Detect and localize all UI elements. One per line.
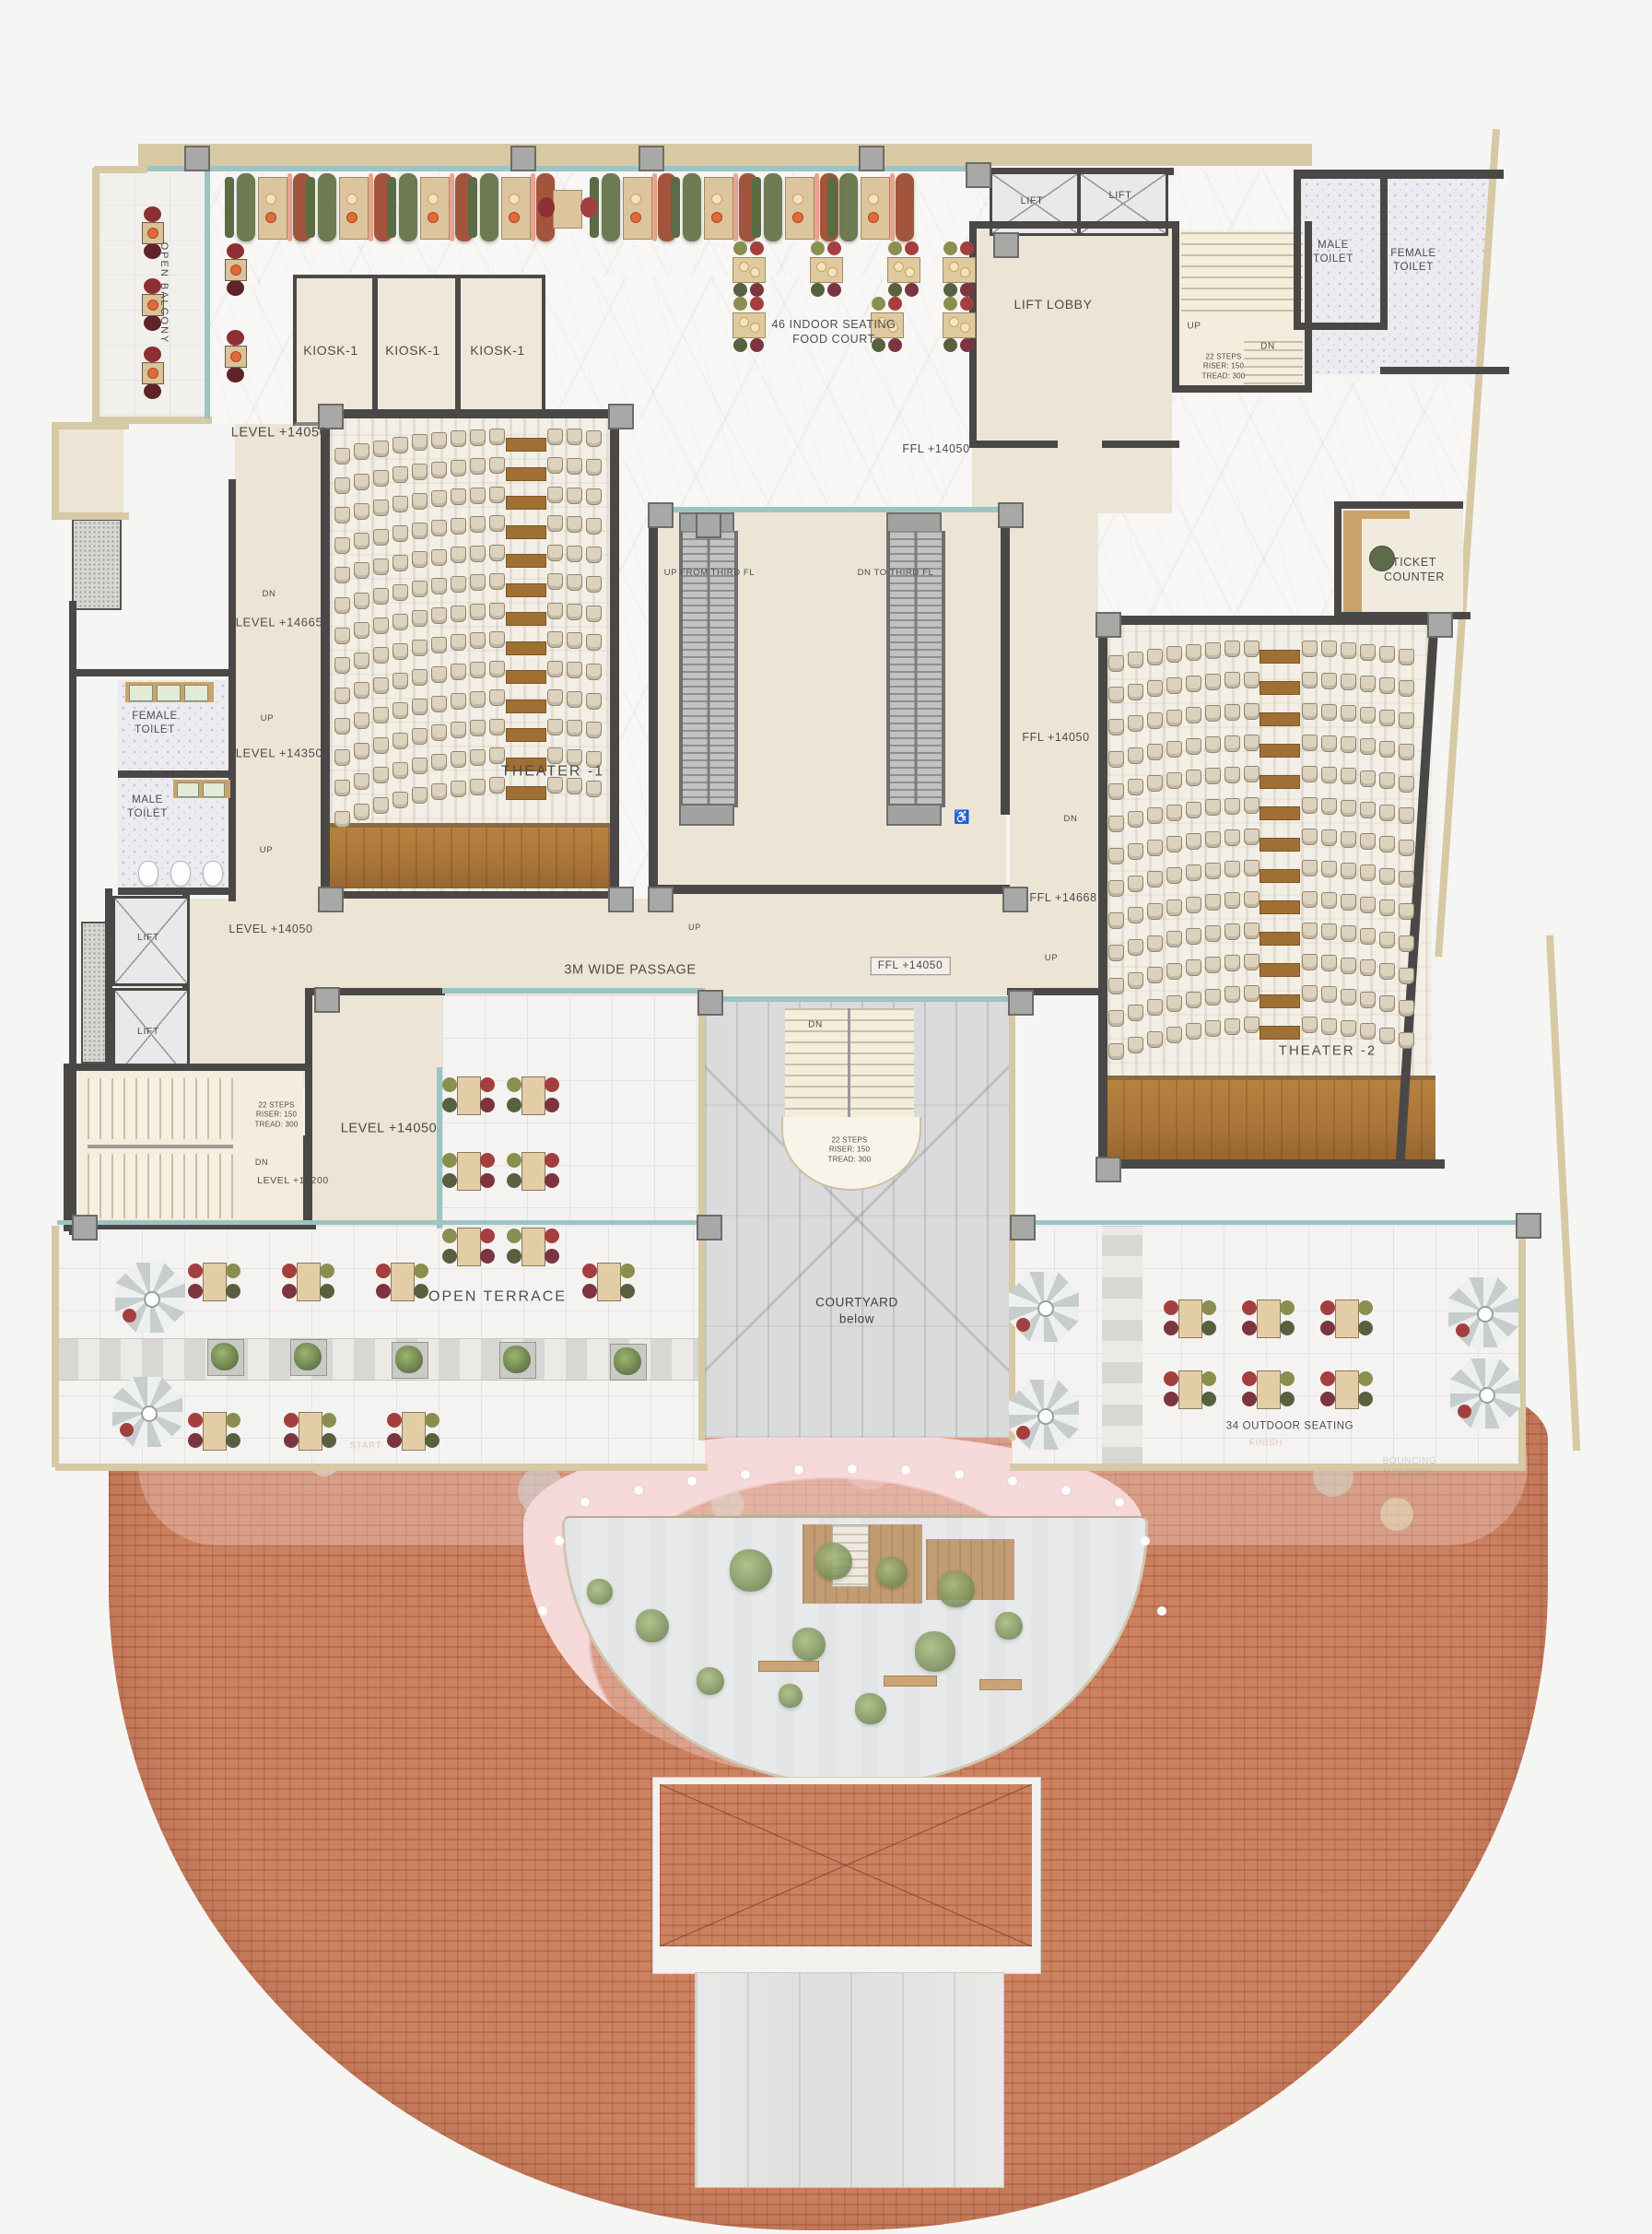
theater-seat: [1147, 712, 1163, 729]
theater-seat: [567, 662, 582, 678]
theater-seat: [451, 664, 466, 680]
plate: [346, 212, 357, 223]
outdoor-table: [597, 1263, 621, 1301]
walkway-dot: [634, 1486, 643, 1495]
theater-seat: [1205, 925, 1221, 942]
theater-seat: [1147, 680, 1163, 697]
chair: [582, 1264, 597, 1278]
theater-seat: [1302, 923, 1318, 939]
aisle-step: [1260, 775, 1300, 789]
courtyard-bench: [758, 1661, 819, 1672]
chair: [376, 1284, 391, 1299]
theater-seat: [1205, 705, 1221, 722]
theater-seat: [1205, 674, 1221, 690]
chair: [811, 283, 825, 297]
chair: [425, 1433, 439, 1448]
theater-seat: [470, 662, 486, 678]
theater-seat: [567, 574, 582, 591]
theater-seat: [1186, 644, 1201, 661]
column: [72, 1215, 98, 1240]
theater-seat: [1321, 735, 1337, 752]
chair: [1458, 1405, 1471, 1418]
theater-seat: [1341, 958, 1356, 974]
dining-table: [943, 257, 976, 283]
theater-seat: [1399, 776, 1414, 793]
theater-seat: [354, 533, 369, 549]
theater-seat: [334, 477, 350, 494]
theater-seat: [1166, 931, 1182, 947]
column: [697, 1215, 722, 1240]
theater-seat: [1128, 907, 1143, 923]
theater-seat: [1186, 1023, 1201, 1040]
plate: [750, 323, 760, 333]
theater-seat: [1379, 710, 1395, 726]
chair: [442, 1249, 457, 1264]
theater-seat: [567, 632, 582, 649]
chair: [188, 1433, 203, 1448]
theater-seat: [1341, 705, 1356, 722]
courtyard-tree: [697, 1667, 724, 1695]
theater-seat: [354, 653, 369, 669]
column: [648, 887, 674, 912]
theater-seat: [1224, 672, 1240, 688]
theater-seat: [1244, 797, 1260, 814]
aisle-step: [506, 554, 546, 568]
theater-seat: [1128, 876, 1143, 892]
theater-seat: [1147, 744, 1163, 760]
chair: [545, 1173, 559, 1188]
plate: [147, 368, 158, 379]
column: [639, 146, 664, 171]
theater-seat: [1186, 928, 1201, 945]
chair: [733, 338, 747, 352]
booth-seat-accent: [531, 173, 535, 241]
booth-seat: [480, 173, 498, 241]
outdoor-table: [457, 1228, 481, 1266]
theater-seat: [451, 634, 466, 651]
theater-seat: [1244, 1017, 1260, 1033]
column: [608, 887, 634, 912]
column: [993, 232, 1019, 258]
chair: [1280, 1321, 1295, 1335]
aisle-step: [1260, 650, 1300, 664]
stair-treads: [88, 1154, 233, 1218]
theater-seat: [470, 488, 486, 504]
toilet-tr-floor: [1301, 179, 1500, 374]
walkway-dot: [687, 1476, 697, 1486]
chair: [1242, 1371, 1257, 1386]
theater-seat: [1244, 860, 1260, 876]
theater-seat: [1205, 989, 1221, 1005]
theater-seat: [567, 429, 582, 445]
theater-seat: [1341, 800, 1356, 817]
column: [859, 146, 885, 171]
booth-plant: [752, 177, 761, 238]
passage-label: 3M WIDE PASSAGE: [564, 962, 696, 980]
glass-line: [705, 996, 1011, 1002]
chair: [120, 1423, 134, 1437]
open-terrace-label: OPEN TERRACE: [428, 1288, 567, 1308]
theater-seat: [1108, 1010, 1124, 1027]
booth-seat: [683, 173, 701, 241]
chair: [507, 1173, 521, 1188]
theater-seat: [392, 792, 408, 808]
theater-seat: [1186, 676, 1201, 692]
booth-table: [258, 177, 287, 240]
chair: [733, 241, 747, 255]
theater-seat: [392, 762, 408, 779]
theater-seat: [1379, 741, 1395, 758]
ticket-counter-label: TICKET COUNTER: [1384, 555, 1445, 585]
chair: [733, 297, 747, 311]
theater-seat: [1399, 935, 1414, 952]
theater-seat: [1379, 772, 1395, 789]
sink: [157, 685, 181, 701]
plate: [265, 194, 276, 205]
theater-seat: [1128, 747, 1143, 764]
theater-seat: [567, 488, 582, 504]
theater-seat: [1302, 672, 1318, 688]
plate: [905, 267, 915, 277]
chair: [1016, 1318, 1030, 1332]
plate: [509, 194, 520, 205]
theater-seat: [431, 520, 447, 536]
theater-seat: [567, 604, 582, 620]
theater-seat: [1205, 831, 1221, 848]
terrace-paving-band: [57, 1338, 705, 1381]
theater-seat: [1108, 945, 1124, 961]
chair: [1358, 1300, 1373, 1315]
theater-seat: [1321, 923, 1337, 940]
outdoor-table: [1257, 1299, 1281, 1338]
theater-seat: [412, 758, 428, 774]
theater-seat: [547, 719, 563, 735]
aisle-step: [506, 583, 546, 597]
planter-shrub: [294, 1343, 322, 1370]
theater-seat: [489, 487, 505, 503]
theater-seat: [1224, 798, 1240, 815]
theater-seat: [1341, 674, 1356, 690]
theater-seat: [392, 643, 408, 660]
theater-seat: [470, 516, 486, 533]
plate: [827, 267, 838, 277]
theater-seat: [451, 460, 466, 476]
theater-seat: [1186, 959, 1201, 976]
booth-seat: [237, 173, 255, 241]
theater-seat: [1321, 798, 1337, 815]
stair-note: 22 STEPS RISER: 150 TREAD: 300: [828, 1135, 872, 1164]
glass-line: [147, 166, 971, 171]
column: [1095, 1157, 1121, 1182]
booth-plant: [387, 177, 396, 238]
courtyard-tree: [815, 1543, 852, 1580]
outdoor-table: [1335, 1370, 1359, 1409]
theater-seat: [334, 749, 350, 766]
theater-seat: [1128, 972, 1143, 989]
theater-seat: [1128, 652, 1143, 668]
chair: [960, 338, 974, 352]
kiosk-label: KIOSK-1: [385, 342, 439, 359]
chair: [827, 283, 841, 297]
umbrella-center: [1037, 1408, 1054, 1425]
walkway-dot: [1115, 1498, 1124, 1507]
planter-shrub: [211, 1343, 239, 1370]
theater-seat: [1108, 655, 1124, 672]
theater-seat: [547, 631, 563, 648]
walkway-dot: [538, 1606, 547, 1616]
theater-seat: [1379, 646, 1395, 663]
walkway-dot: [741, 1470, 750, 1479]
chair: [620, 1264, 635, 1278]
theater-seat: [1128, 779, 1143, 795]
chair: [226, 1433, 240, 1448]
theater-seat: [547, 661, 563, 677]
chair: [442, 1173, 457, 1188]
chair: [442, 1098, 457, 1112]
theater-seat: [373, 441, 389, 457]
chair: [545, 1077, 559, 1092]
chair: [545, 1098, 559, 1112]
plate: [949, 262, 959, 272]
theater-seat: [1224, 986, 1240, 1003]
play-start-label: START: [350, 1440, 382, 1452]
chair: [545, 1249, 559, 1264]
chair: [1242, 1392, 1257, 1406]
toilet-fixture: [138, 861, 158, 887]
booth-table: [861, 177, 890, 240]
chair: [227, 243, 244, 259]
theater-seat: [470, 429, 486, 446]
theater-seat: [1341, 925, 1356, 942]
theater-seat: [567, 691, 582, 708]
level-label: LEVEL +14050: [341, 1121, 438, 1138]
theater-seat: [489, 429, 505, 445]
chair: [480, 1077, 495, 1092]
theater-seat: [1108, 751, 1124, 768]
chair: [442, 1153, 457, 1168]
theater-seat: [1302, 735, 1318, 751]
chair: [144, 383, 161, 399]
vestibule-floor: [309, 995, 442, 1228]
chair: [1280, 1371, 1295, 1386]
theater-seat: [489, 689, 505, 706]
theater-seat: [1321, 986, 1337, 1003]
female-toilet-label: FEMALE TOILET: [1390, 247, 1436, 275]
theater-seat: [1244, 985, 1260, 1002]
passage-floor: [309, 899, 1106, 995]
theater-seat: [1360, 707, 1376, 723]
theater-seat: [1186, 707, 1201, 723]
theater-seat: [1321, 861, 1337, 877]
theater-seat: [334, 448, 350, 464]
theater-seat: [1108, 687, 1124, 703]
theater2-label: THEATER -2: [1279, 1041, 1377, 1060]
outdoor-table: [521, 1228, 545, 1266]
top-facade-band: [138, 144, 1312, 166]
theater-seat: [1224, 641, 1240, 657]
theater-seat: [489, 661, 505, 677]
outdoor-seating-label: 34 OUTDOOR SEATING: [1226, 1420, 1353, 1434]
theater-seat: [431, 666, 447, 683]
theater-seat: [586, 547, 602, 563]
theater-seat: [334, 718, 350, 735]
theater-seat: [354, 682, 369, 699]
theater-seat: [373, 588, 389, 605]
chair: [1164, 1300, 1178, 1315]
theater-seat: [1166, 899, 1182, 916]
theater-seat: [1128, 715, 1143, 732]
theater-seat: [567, 546, 582, 562]
theater-seat: [1166, 995, 1182, 1012]
theater-seat: [586, 606, 602, 622]
walkway-dot: [848, 1464, 857, 1474]
chair: [1320, 1392, 1335, 1406]
chair: [1242, 1300, 1257, 1315]
theater-seat: [567, 720, 582, 736]
chair: [1280, 1392, 1295, 1406]
theater-seat: [392, 614, 408, 630]
plate: [868, 212, 879, 223]
theater-seat: [392, 496, 408, 512]
theater-seat: [586, 634, 602, 651]
food-court-label: 46 INDOOR SEATING FOOD COURT: [772, 317, 896, 347]
booth-table: [623, 177, 652, 240]
courtyard-tree: [587, 1579, 613, 1605]
theater-seat: [334, 811, 350, 828]
theater-seat: [1186, 992, 1201, 1008]
theater-seat: [1108, 880, 1124, 897]
theater-seat: [1399, 649, 1414, 665]
booth-seat: [399, 173, 417, 241]
theater-seat: [1399, 807, 1414, 824]
theater-seat: [1205, 799, 1221, 816]
dining-table: [810, 257, 843, 283]
theater-seat: [1224, 923, 1240, 940]
theater-seat: [1108, 1043, 1124, 1060]
theater-seat: [451, 488, 466, 505]
dining-table: [887, 257, 920, 283]
theater-seat: [586, 430, 602, 447]
column: [608, 404, 634, 429]
walkway-dot: [580, 1498, 590, 1507]
chair: [888, 283, 902, 297]
theater-seat: [1321, 767, 1337, 783]
theater-seat: [1302, 1017, 1318, 1033]
theater-seat: [1147, 1031, 1163, 1048]
theater-seat: [586, 576, 602, 593]
theater-seat: [431, 724, 447, 741]
courtyard-label: COURTYARD below: [815, 1294, 898, 1326]
booth-seat: [896, 173, 914, 241]
chair: [1320, 1371, 1335, 1386]
chair: [888, 297, 902, 311]
chair: [226, 1264, 240, 1278]
theater-seat: [1379, 805, 1395, 821]
chair: [1201, 1300, 1216, 1315]
plate: [509, 212, 520, 223]
theater-seat: [392, 673, 408, 689]
chair: [905, 241, 919, 255]
plate: [894, 262, 904, 272]
theater-seat: [470, 458, 486, 475]
chair: [480, 1153, 495, 1168]
walkway-dot: [1061, 1486, 1071, 1495]
stair-note: 22 STEPS RISER: 150 TREAD: 300: [1202, 352, 1246, 381]
theater-seat: [334, 597, 350, 614]
theater-seat: [431, 607, 447, 624]
plate: [711, 212, 722, 223]
booth-seat-accent: [652, 173, 657, 241]
theater-seat: [1360, 770, 1376, 787]
column: [318, 887, 344, 912]
theater-seat: [1341, 736, 1356, 753]
theater-seat: [373, 797, 389, 814]
chair: [227, 330, 244, 346]
theater-seat: [392, 555, 408, 571]
theater-seat: [1108, 816, 1124, 832]
dining-table: [732, 312, 766, 338]
theater-seat: [431, 637, 447, 653]
theater-seat: [412, 434, 428, 451]
chair: [943, 241, 957, 255]
theater-seat: [1379, 868, 1395, 885]
aisle-step: [506, 728, 546, 742]
theater-seat: [431, 432, 447, 449]
theater-seat: [354, 743, 369, 759]
booth-table: [704, 177, 733, 240]
umbrella-center: [1037, 1300, 1054, 1317]
courtyard-tree: [779, 1684, 803, 1708]
chair: [284, 1413, 299, 1428]
theater-seat: [1205, 768, 1221, 784]
chair: [1358, 1392, 1373, 1406]
theater-seat: [470, 604, 486, 620]
plate: [346, 194, 357, 205]
chair: [507, 1098, 521, 1112]
theater-seat: [392, 437, 408, 453]
theater-seat: [1205, 863, 1221, 879]
theater-seat: [1128, 939, 1143, 956]
theater-seat: [431, 490, 447, 507]
theater-seat: [547, 515, 563, 532]
theater-seat: [567, 458, 582, 475]
booth-table: [420, 177, 450, 240]
booth-plant: [225, 177, 234, 238]
lift-label: LIFT: [1108, 189, 1131, 202]
booth-seat-accent: [450, 173, 454, 241]
theater-seat: [373, 470, 389, 487]
chair: [580, 197, 597, 218]
theater-seat: [1147, 999, 1163, 1016]
booth-seat: [839, 173, 858, 241]
planter-shrub: [503, 1346, 531, 1373]
male-toilet-label: MALE TOILET: [127, 794, 168, 821]
chair: [227, 280, 244, 296]
booth-seat-accent: [814, 173, 819, 241]
theater-seat: [1147, 871, 1163, 888]
level-label: LEVEL +14050: [231, 425, 328, 442]
courtyard-tree: [730, 1549, 772, 1592]
theater-seat: [470, 749, 486, 766]
theater-seat: [354, 622, 369, 639]
theater-seat: [1379, 899, 1395, 916]
wheelchair-icon: ♿: [954, 808, 970, 825]
chair: [1358, 1321, 1373, 1335]
chair: [943, 297, 957, 311]
outdoor-table: [203, 1263, 227, 1301]
booth-seat-accent: [890, 173, 895, 241]
chair: [1164, 1371, 1178, 1386]
